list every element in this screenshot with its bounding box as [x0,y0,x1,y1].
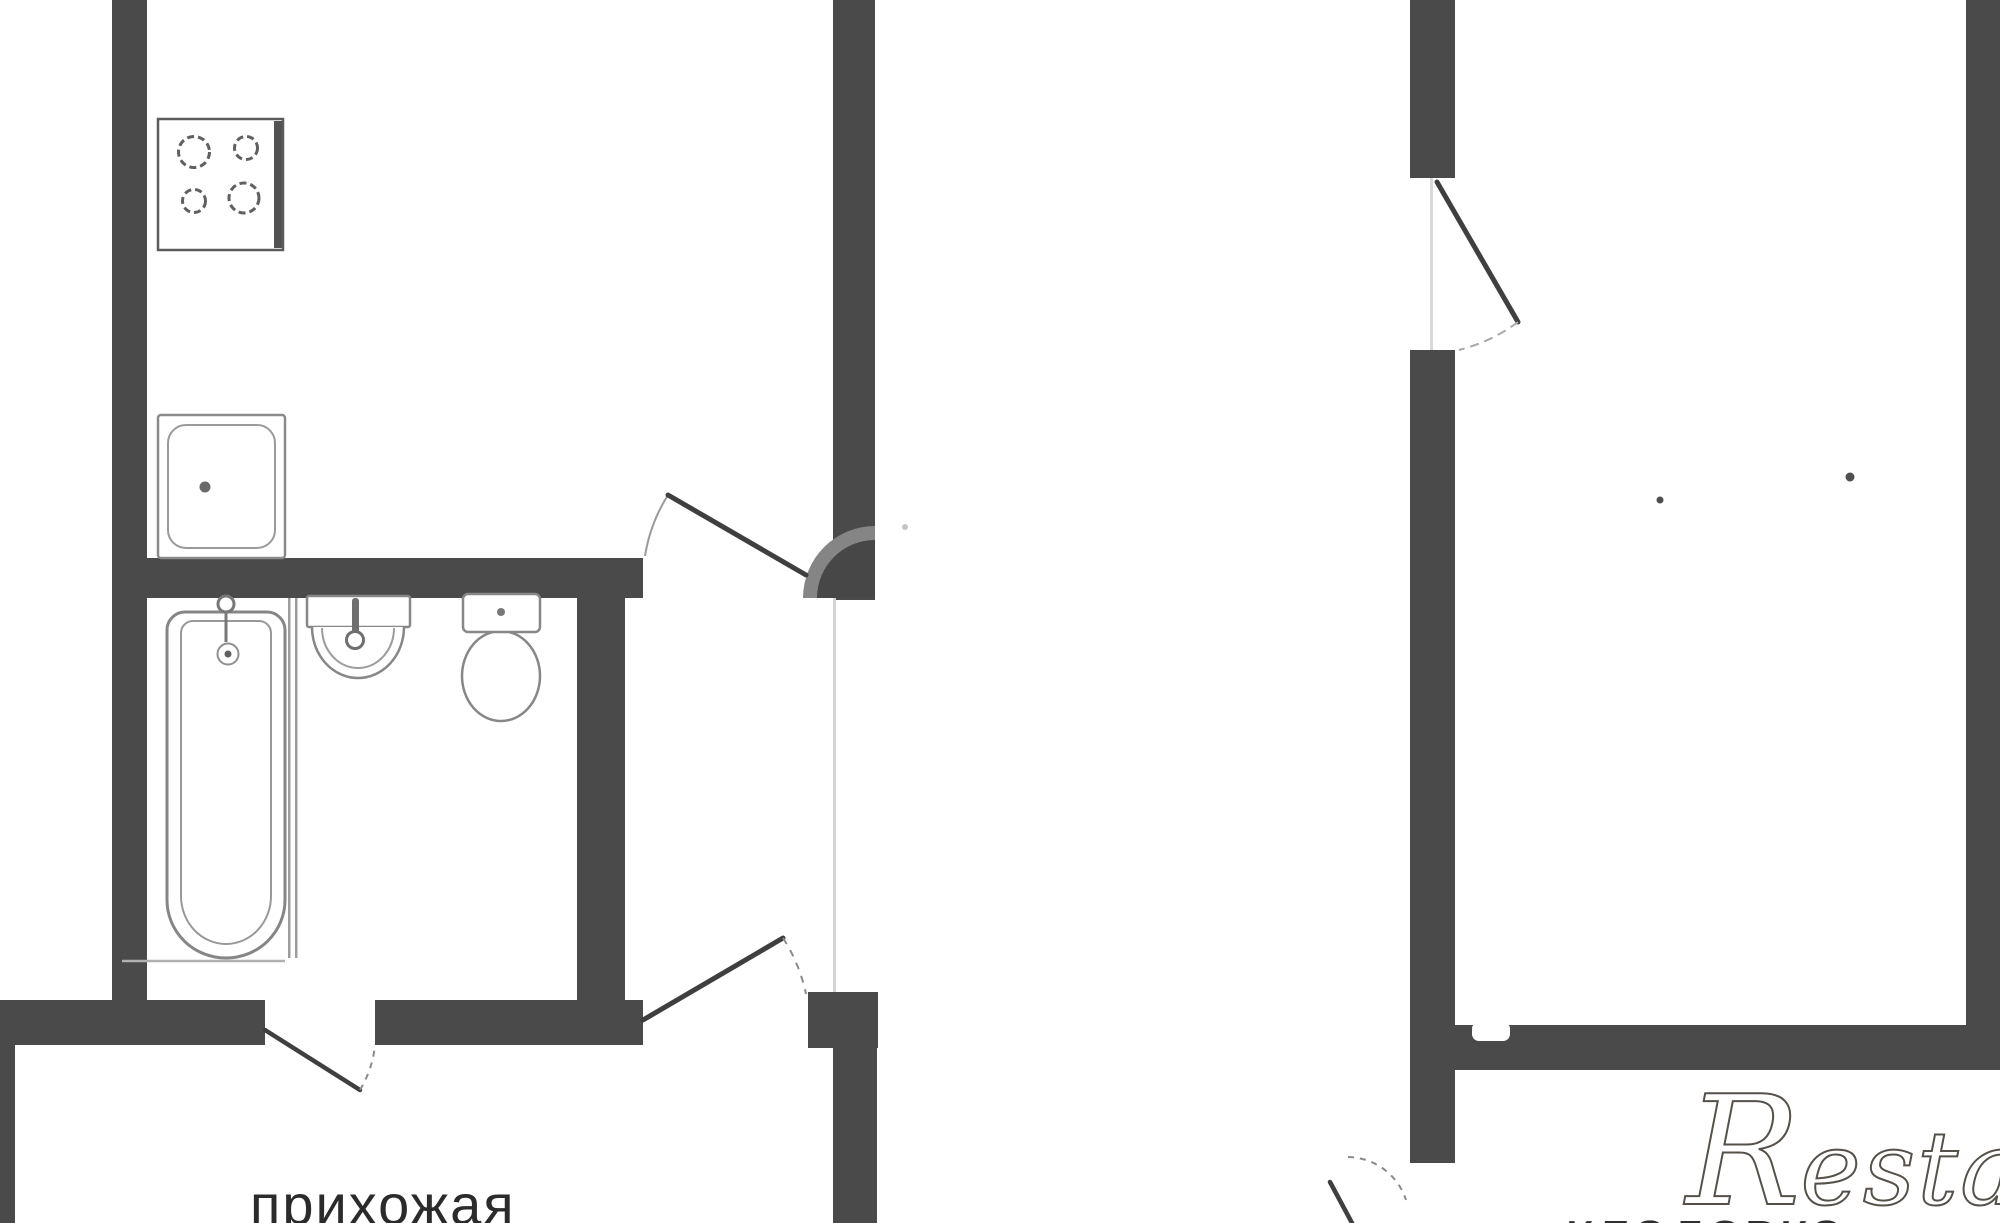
right-outer-wall [1966,0,2000,1070]
restate-watermark: Restate [1686,1076,2000,1223]
left-outer-wall [112,0,147,1045]
bathroom-door-leaf [265,1030,360,1090]
washbasin-tap-head [347,632,364,649]
hallway-room-label: прихожая [250,1172,516,1223]
bathtub-tap-head [218,596,234,612]
bathtub-drain-dot [225,651,232,658]
right-room-dot-1 [1657,497,1664,504]
entry-door-jamb-block [808,992,878,1048]
floor-plan-canvas: прихожая кладовка Restate [0,0,2000,1223]
right-unit-left-wall-main [1410,350,1455,1163]
right-room-door-arc [1459,322,1518,350]
stove-outline [158,119,283,250]
kitchen-sink-drain [200,482,211,493]
watermark-initial: R [1686,1076,1800,1223]
right-door-gap-line [1430,178,1433,350]
bath-partition-line-1 [288,598,291,958]
right-unit-left-wall-upper [1410,0,1455,178]
bathroom-door-arc [360,1045,375,1090]
toilet-bowl [462,631,540,721]
bath-partition-line-2 [295,598,298,958]
bathroom-right-wall [577,590,625,1045]
entry-door-leaf [643,938,783,1020]
storage-door-arc [1348,1157,1406,1200]
entry-door-arc [783,938,806,994]
corridor-lower-wall [833,1045,877,1223]
right-room-dot-2 [1846,473,1855,482]
watermark-middle: estat [1800,1119,2000,1221]
right-room-door-leaf [1437,182,1518,322]
hall-faint-dot [902,524,908,530]
kitchen-bottom-wall [140,558,643,598]
bottom-wall-left-segment [0,1000,265,1045]
kitchen-door-arc [645,495,668,556]
corridor-open-edge-line [833,598,836,992]
floor-plan-drawing [0,0,2000,1223]
toilet-flush-button [497,608,505,616]
left-edge-wall-sliver [0,1045,15,1223]
bottom-wall-mid-segment [375,1000,643,1045]
kitchen-door-leaf [668,495,806,575]
storage-door-leaf [1330,1182,1352,1223]
kitchen-right-wall [833,0,875,600]
storage-wall-notch [1472,1022,1510,1041]
kitchen-sink-outline [158,415,285,558]
stove-right-rim [274,121,282,248]
